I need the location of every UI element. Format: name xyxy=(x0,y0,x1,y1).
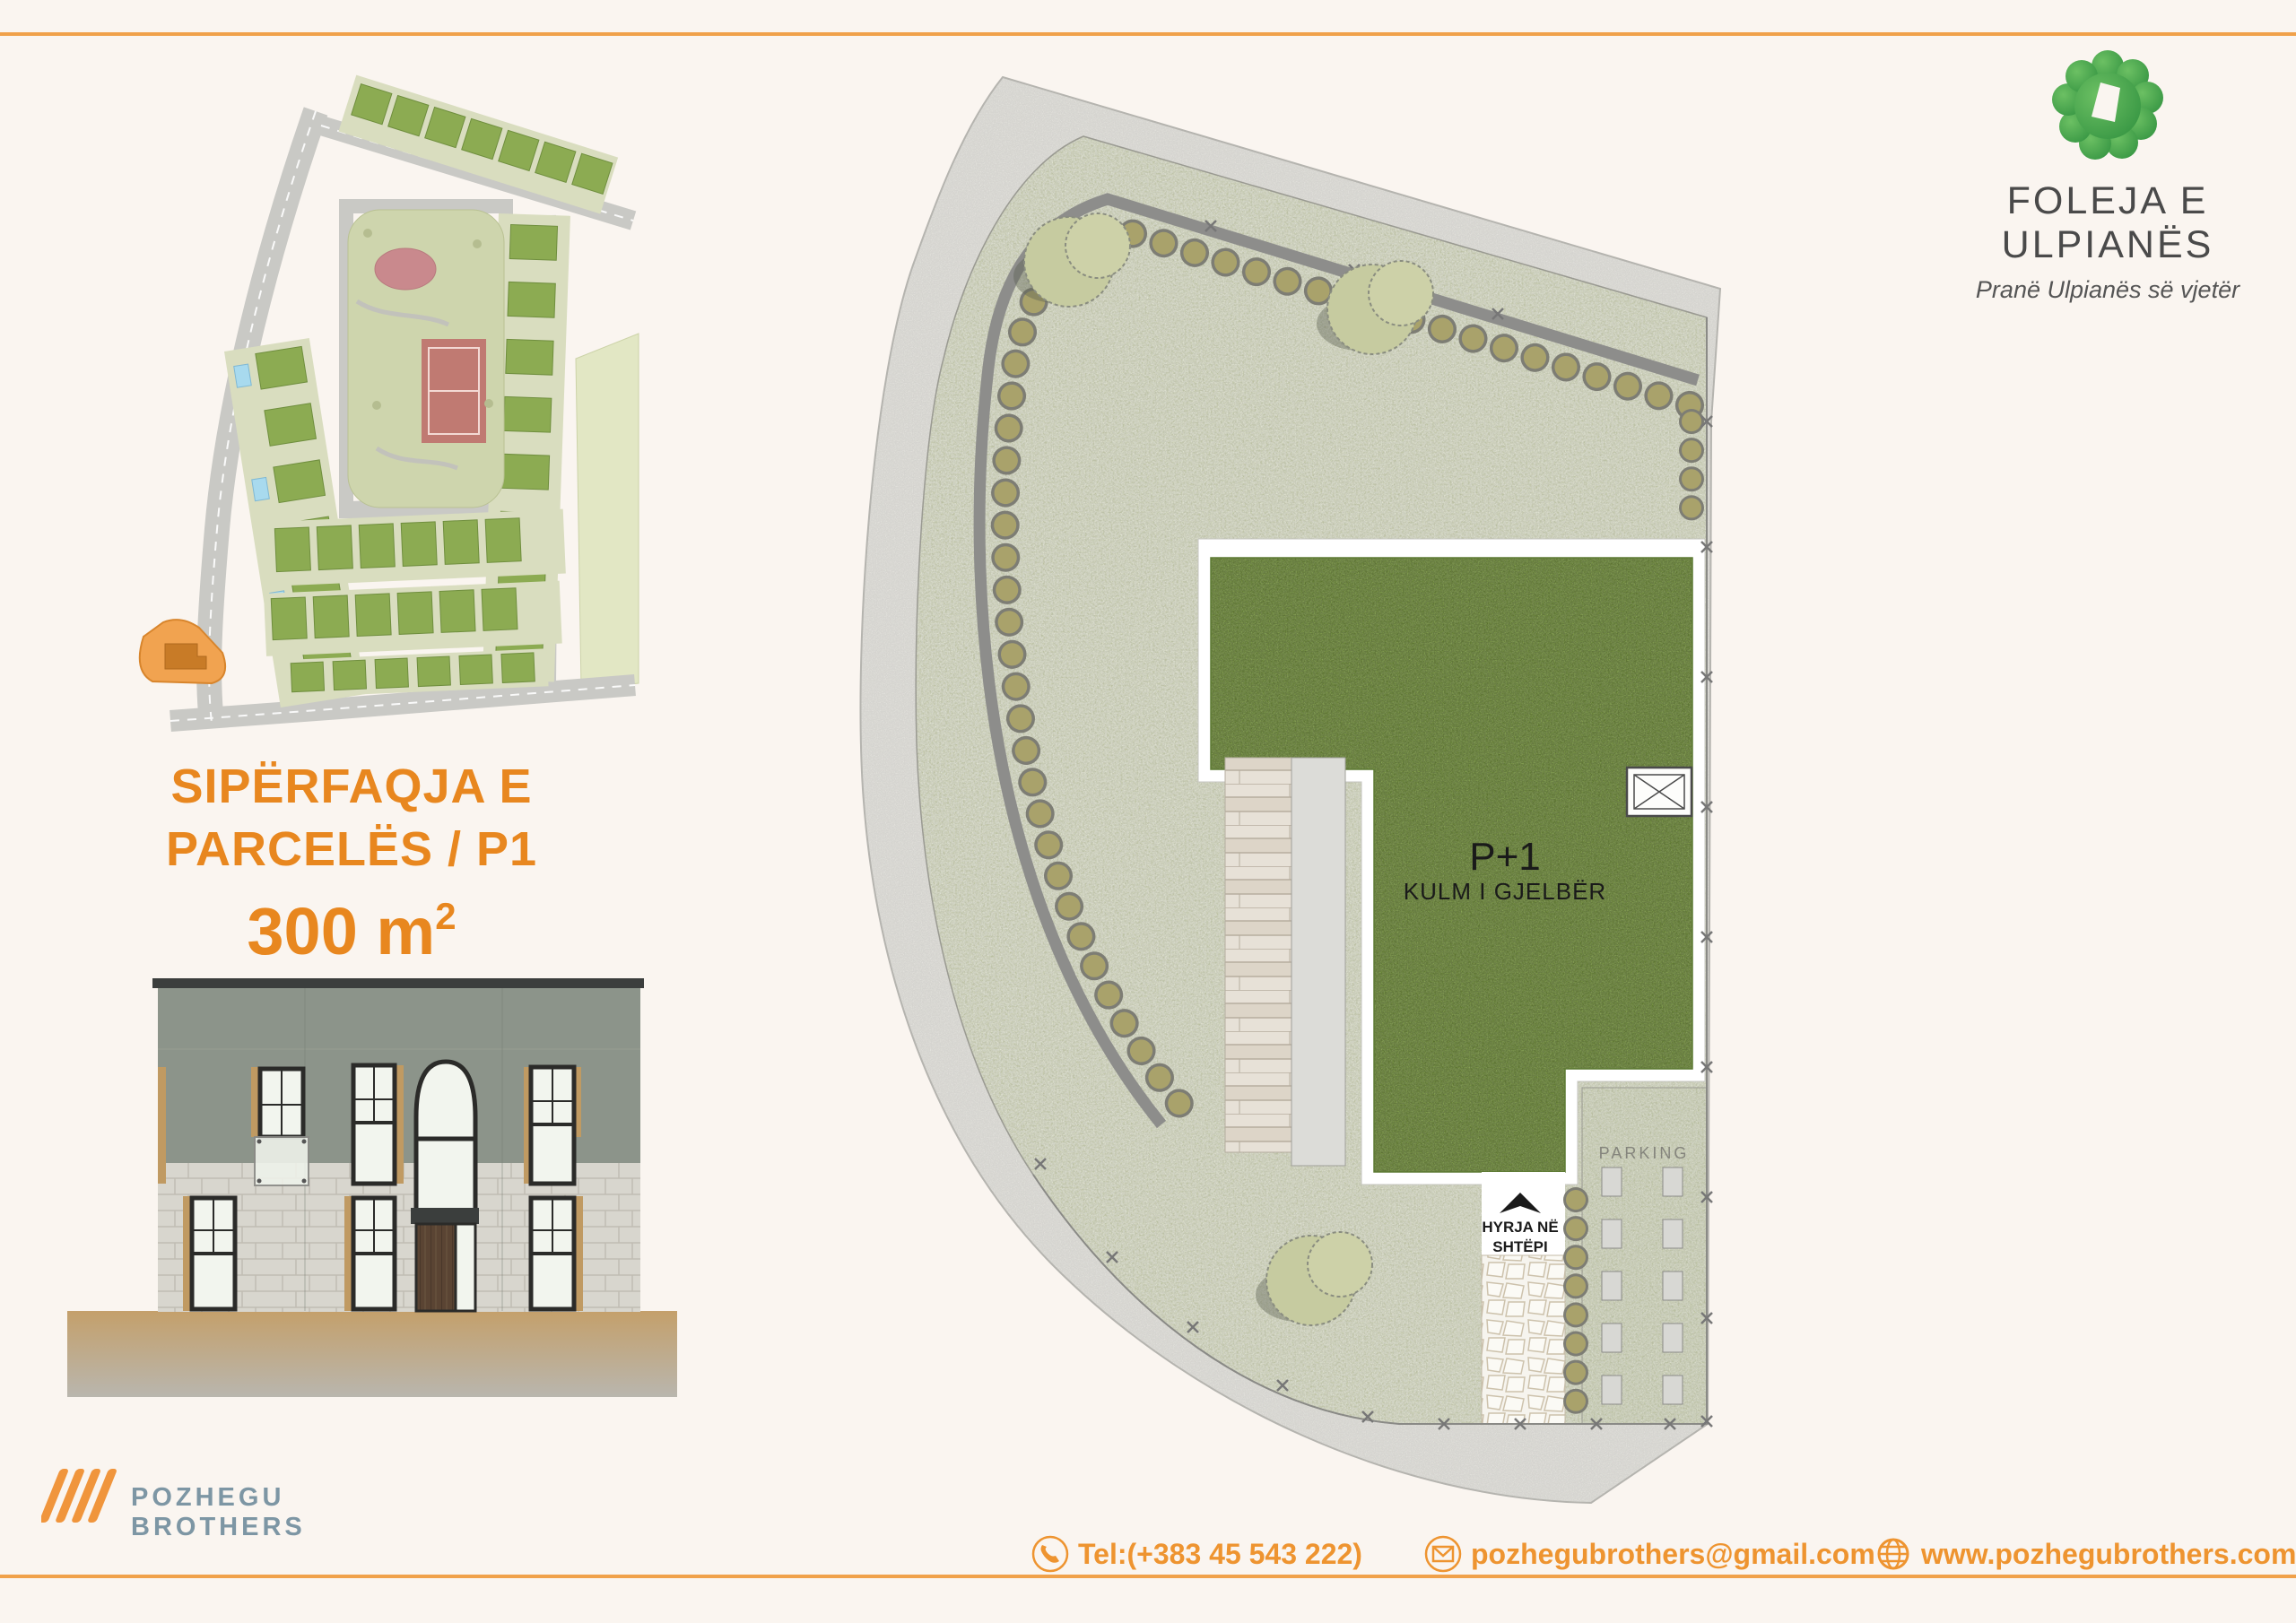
company-name-line2: BROTHERS xyxy=(131,1513,306,1542)
juliet-balcony xyxy=(255,1137,309,1185)
pool xyxy=(234,364,252,387)
masterplan-meadow xyxy=(576,334,639,689)
email-text: pozhegubrothers@gmail.com xyxy=(1471,1538,1875,1571)
parcel-area-heading: SIPËRFAQJA E PARCELËS / P1 300 m2 xyxy=(106,755,597,969)
masterplan-map xyxy=(135,49,641,758)
roofline xyxy=(152,978,644,988)
area-heading-line1: SIPËRFAQJA E xyxy=(106,755,597,818)
site-plan: P+1 KULM I GJELBËR PARKING HYRJA NË SHTË… xyxy=(834,45,1740,1542)
pool xyxy=(252,477,270,500)
building-label: P+1 xyxy=(1469,835,1541,879)
phone-icon xyxy=(1031,1535,1069,1573)
building-sublabel: KULM I GJELBËR xyxy=(1404,878,1606,905)
wood-deck xyxy=(1225,758,1291,1152)
parking-label: PARKING xyxy=(1599,1144,1690,1162)
email-contact[interactable]: pozhegubrothers@gmail.com xyxy=(1424,1533,1875,1575)
concrete-strip xyxy=(1291,758,1345,1166)
company-logo: POZHEGU BROTHERS xyxy=(41,1467,306,1542)
skylight-icon xyxy=(1627,768,1692,816)
phone-text: Tel:(+383 45 543 222) xyxy=(1078,1538,1362,1571)
area-heading-line2: PARCELËS / P1 xyxy=(106,818,597,881)
area-value: 300 m2 xyxy=(106,893,597,969)
entrance-label-line2: SHTËPI xyxy=(1492,1238,1547,1255)
brand-title: FOLEJA E ULPIANËS xyxy=(1919,179,2296,267)
elevation-ground xyxy=(67,1311,677,1397)
brand-logo: FOLEJA E ULPIANËS Pranë Ulpianës së vjet… xyxy=(1919,43,2296,304)
email-icon xyxy=(1424,1535,1462,1573)
brand-subtitle: Pranë Ulpianës së vjetër xyxy=(1919,276,2296,304)
arched-entry xyxy=(411,1062,479,1311)
pozhegu-slashes-icon xyxy=(41,1467,118,1526)
masterplan-park xyxy=(348,210,504,508)
entry-door xyxy=(416,1224,456,1311)
globe-icon xyxy=(1874,1535,1912,1573)
entrance-label-line1: HYRJA NË xyxy=(1482,1219,1558,1236)
foleja-flower-icon xyxy=(2040,43,2175,169)
bottom-orange-rule xyxy=(0,1575,2296,1578)
company-name-line1: POZHEGU xyxy=(131,1483,306,1513)
phone-contact[interactable]: Tel:(+383 45 543 222) xyxy=(1031,1533,1362,1575)
website-contact[interactable]: www.pozhegubrothers.com xyxy=(1874,1533,2296,1575)
website-text: www.pozhegubrothers.com xyxy=(1921,1538,2296,1571)
top-orange-rule xyxy=(0,32,2296,36)
elevation-drawing xyxy=(54,973,686,1421)
parking-area xyxy=(1582,1088,1707,1424)
